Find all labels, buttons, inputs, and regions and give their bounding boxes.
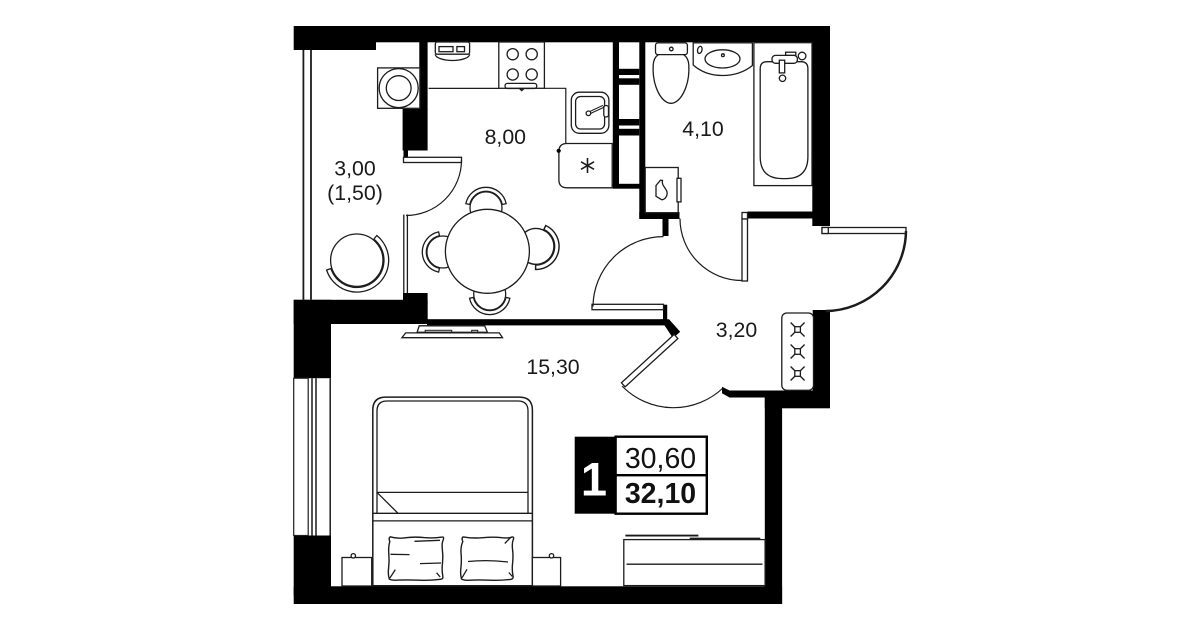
svg-text:3,20: 3,20 xyxy=(716,318,758,342)
svg-text:8,00: 8,00 xyxy=(485,125,527,149)
svg-text:1: 1 xyxy=(581,453,607,506)
svg-text:30,60: 30,60 xyxy=(625,443,696,475)
svg-text:15,30: 15,30 xyxy=(526,355,579,379)
svg-text:32,10: 32,10 xyxy=(625,478,696,510)
svg-text:4,10: 4,10 xyxy=(682,117,724,141)
svg-text:3,00: 3,00 xyxy=(334,157,376,181)
svg-text:(1,50): (1,50) xyxy=(327,181,383,205)
